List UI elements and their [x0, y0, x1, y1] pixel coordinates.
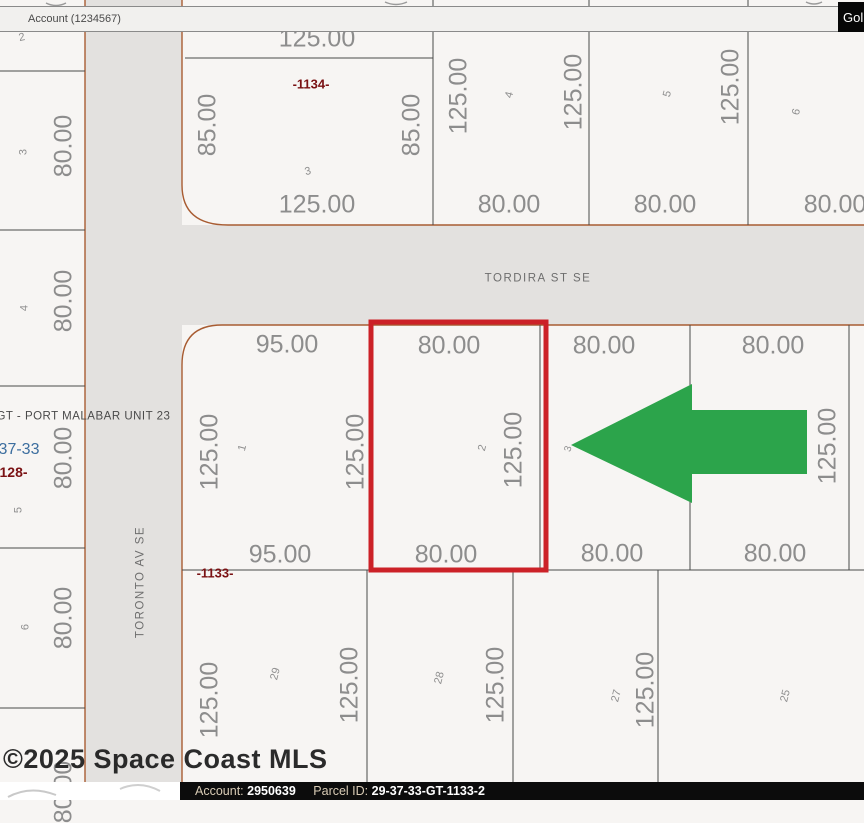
lot-number: 3 [563, 445, 574, 453]
dimension-label: 125.00 [344, 414, 369, 490]
dimension-label: 85.00 [196, 94, 221, 157]
status-parcel-label: Parcel ID: [313, 784, 368, 798]
map-label-layer: TORDIRA ST SETORONTO AV SE-1134--1133-#G… [0, 0, 864, 800]
lot-number: 27 [610, 689, 624, 704]
lot-number: 5 [662, 90, 674, 99]
account-tab-bar: Account (1234567) [0, 6, 864, 32]
logo-sketch [0, 782, 180, 800]
dimension-label: 125.00 [816, 408, 841, 484]
lot-number: 2 [477, 444, 489, 453]
dimension-label: 80.00 [52, 270, 77, 333]
township-range-label: 37-33 [0, 442, 39, 458]
street-name-toronto: TORONTO AV SE [135, 526, 147, 638]
status-account-label: Account: [195, 784, 244, 798]
block-number-1133: -1133- [197, 567, 234, 580]
lot-number: 28 [433, 671, 447, 686]
dimension-label: 80.00 [573, 334, 636, 359]
dimension-label: 125.00 [447, 58, 472, 134]
lot-number: 6 [21, 624, 32, 630]
dimension-label: 85.00 [400, 94, 425, 157]
lot-number: 6 [791, 108, 803, 117]
parcel-map[interactable]: TORDIRA ST SETORONTO AV SE-1134--1133-#G… [0, 0, 864, 800]
dimension-label: 80.00 [804, 193, 864, 218]
dimension-label: 80.00 [52, 115, 77, 178]
lot-number: 4 [504, 91, 516, 100]
account-tab-label: Account (1234567) [28, 7, 121, 31]
dimension-label: 125.00 [484, 647, 509, 723]
logo-sketch-box [0, 782, 180, 800]
lot-number: 29 [269, 667, 283, 682]
dimension-label: 80.00 [634, 193, 697, 218]
dimension-label: 125.00 [198, 414, 223, 490]
watermark-text: ©2025 Space Coast MLS [3, 744, 328, 775]
dimension-label: 80.00 [742, 334, 805, 359]
dimension-label: 125.00 [719, 49, 744, 125]
block-number-1134: -1134- [293, 78, 330, 91]
dimension-label: 125.00 [562, 54, 587, 130]
dimension-label: 80.00 [52, 427, 77, 490]
dimension-label: 80.00 [418, 334, 481, 359]
dimension-label: 80.00 [415, 543, 478, 568]
dimension-label: 125.00 [279, 193, 355, 218]
street-name-tordira: TORDIRA ST SE [485, 273, 592, 285]
status-account-value: 2950639 [247, 784, 296, 798]
go-button[interactable]: Gol [838, 2, 864, 32]
dimension-label: 125.00 [634, 652, 659, 728]
status-bar: Account: 2950639 Parcel ID: 29-37-33-GT-… [180, 782, 864, 800]
lot-number: 3 [19, 149, 30, 155]
dimension-label: 95.00 [256, 333, 319, 358]
lot-number: 5 [14, 507, 25, 513]
lot-number: 1 [237, 444, 249, 453]
dimension-label: 125.00 [502, 412, 527, 488]
dimension-label: 80.00 [52, 587, 77, 650]
lot-number: 4 [20, 305, 31, 311]
lot-number: 3 [304, 166, 313, 178]
lot-number: 2 [18, 32, 26, 44]
dimension-label: 125.00 [338, 647, 363, 723]
lot-number: 25 [779, 689, 793, 704]
block-number-1128: 1128- [0, 465, 28, 479]
dimension-label: 80.00 [581, 542, 644, 567]
dimension-label: 125.00 [198, 662, 223, 738]
plat-unit-label: #GT - PORT MALABAR UNIT 23 [0, 411, 170, 423]
dimension-label: 80.00 [478, 193, 541, 218]
status-parcel-value: 29-37-33-GT-1133-2 [372, 784, 485, 798]
dimension-label: 95.00 [249, 543, 312, 568]
dimension-label: 80.00 [744, 542, 807, 567]
